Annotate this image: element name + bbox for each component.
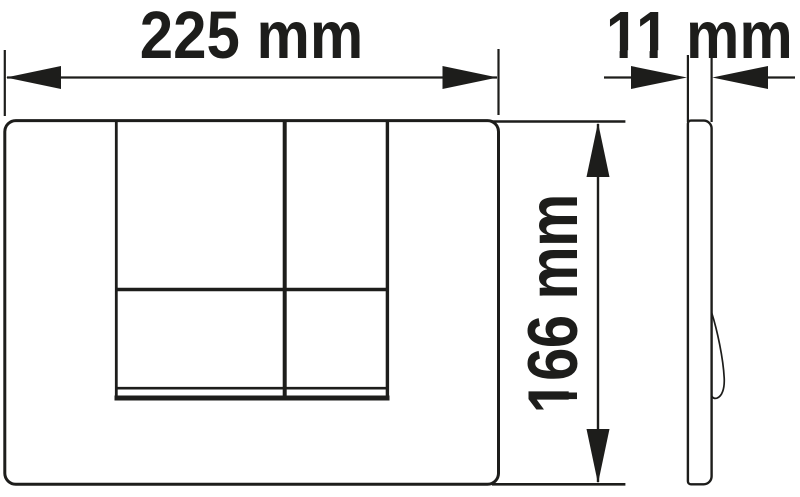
svg-text:166 mm: 166 mm [513, 194, 591, 413]
svg-text:11 mm: 11 mm [606, 0, 793, 73]
svg-text:225 mm: 225 mm [140, 0, 363, 73]
